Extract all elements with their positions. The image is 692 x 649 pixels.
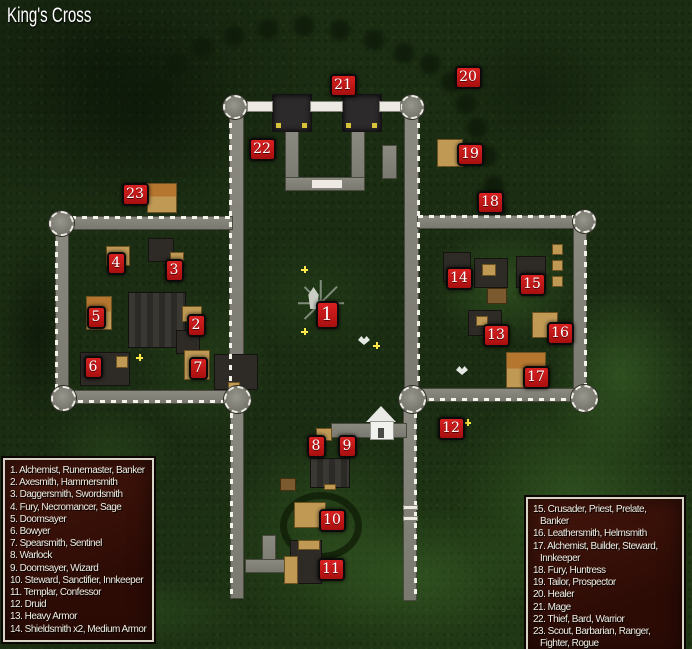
forest-trail <box>330 20 350 40</box>
forest-trail <box>456 94 476 114</box>
legend-item-18: 18. Fury, Huntress <box>533 565 676 577</box>
lantern-dot <box>346 123 351 128</box>
map-marker-14[interactable]: 14 <box>446 267 473 290</box>
castle-bridge <box>247 101 273 112</box>
wall-crenellation <box>55 219 58 401</box>
lantern-dot <box>276 123 281 128</box>
legend-item-13: 13. Heavy Armor <box>10 611 146 623</box>
forest-trail <box>224 26 244 46</box>
loot-cross <box>464 419 471 426</box>
map-marker-4[interactable]: 4 <box>107 252 126 275</box>
map-marker-3[interactable]: 3 <box>165 259 184 282</box>
legend-item-9: 9. Doomsayer, Wizard <box>10 563 146 575</box>
map-marker-22[interactable]: 22 <box>249 138 276 161</box>
tower-west-bottomleft <box>51 386 76 411</box>
map-marker-6[interactable]: 6 <box>84 356 103 379</box>
castle-bridge <box>310 101 343 112</box>
legend-item-1: 1. Alchemist, Runemaster, Banker <box>10 465 146 477</box>
crate-cluster <box>280 478 296 491</box>
legend-item-12: 12. Druid <box>10 599 146 611</box>
kings-cross-map: King's Cross 1. Alchemist, Runemaster, B… <box>0 0 692 649</box>
forest-trail <box>467 118 487 138</box>
building <box>116 356 128 368</box>
east-gate <box>403 505 418 510</box>
legend-item-11: 11. Templar, Confessor <box>10 587 146 599</box>
wall-crenellation <box>56 400 232 403</box>
legend-item-17: 17. Alchemist, Builder, Steward, Innkeep… <box>533 541 676 565</box>
forest-trail <box>166 54 186 74</box>
forest-trail <box>420 54 440 74</box>
crate-cluster <box>487 288 507 304</box>
loot-cross <box>301 328 308 335</box>
legend-item-14: 14. Shieldsmith x2, Medium Armor <box>10 624 146 636</box>
legend-left-panel: 1. Alchemist, Runemaster, Banker2. Axesm… <box>3 458 154 642</box>
building-door <box>324 484 336 490</box>
castle-bridge <box>379 101 401 112</box>
map-marker-8[interactable]: 8 <box>307 435 326 458</box>
legend-item-15: 15. Crusader, Priest, Prelate, Banker <box>533 504 676 528</box>
market-stall <box>552 276 563 287</box>
legend-right-panel: 15. Crusader, Priest, Prelate, Banker16.… <box>526 497 684 649</box>
forest-trail <box>364 30 384 50</box>
forest-trail <box>394 43 414 63</box>
map-marker-12[interactable]: 12 <box>438 417 465 440</box>
tower-east-topright <box>573 210 596 233</box>
building <box>482 264 496 276</box>
market-stall <box>552 244 563 255</box>
path <box>284 556 298 584</box>
building <box>147 183 177 213</box>
map-marker-7[interactable]: 7 <box>189 357 208 380</box>
wall-crenellation <box>418 215 578 218</box>
legend-item-19: 19. Tailor, Prospector <box>533 577 676 589</box>
path <box>298 540 320 550</box>
page-title: King's Cross <box>7 4 91 28</box>
legend-item-10: 10. Steward, Sanctifier, Innkeeper <box>10 575 146 587</box>
map-marker-9[interactable]: 9 <box>338 435 357 458</box>
wall-crenellation <box>414 402 417 600</box>
legend-item-2: 2. Axesmith, Hammersmith <box>10 477 146 489</box>
legend-item-7: 7. Spearsmith, Sentinel <box>10 538 146 550</box>
map-marker-13[interactable]: 13 <box>483 324 510 347</box>
legend-item-8: 8. Warlock <box>10 550 146 562</box>
east-gate <box>403 516 418 521</box>
wall-crenellation <box>229 112 232 402</box>
forest-trail <box>258 19 278 39</box>
forest-trail <box>294 16 314 36</box>
map-marker-5[interactable]: 5 <box>87 306 106 329</box>
map-marker-18[interactable]: 18 <box>477 191 504 214</box>
legend-right-list: 15. Crusader, Priest, Prelate, Banker16.… <box>533 504 676 649</box>
legend-item-22: 22. Thief, Bard, Warrior <box>533 614 676 626</box>
map-marker-1[interactable]: 1 <box>316 301 339 329</box>
map-marker-15[interactable]: 15 <box>519 273 546 296</box>
map-marker-21[interactable]: 21 <box>330 74 357 97</box>
lantern-dot <box>372 123 377 128</box>
white-house-icon <box>366 404 396 442</box>
legend-item-20: 20. Healer <box>533 589 676 601</box>
loot-cross <box>301 266 308 273</box>
legend-item-21: 21. Mage <box>533 602 676 614</box>
map-marker-23[interactable]: 23 <box>122 183 149 206</box>
legend-left-list: 1. Alchemist, Runemaster, Banker2. Axesm… <box>10 465 146 636</box>
wall-crenellation <box>417 112 420 402</box>
map-marker-10[interactable]: 10 <box>319 509 346 532</box>
legend-item-16: 16. Leathersmith, Helmsmith <box>533 528 676 540</box>
forest-trail <box>150 78 170 98</box>
map-marker-19[interactable]: 19 <box>457 143 484 166</box>
wall-crenellation <box>418 398 576 401</box>
small-structure <box>383 146 396 178</box>
lantern-dot <box>302 123 307 128</box>
map-marker-16[interactable]: 16 <box>547 322 574 345</box>
market-stall <box>552 260 563 271</box>
tower-west-topleft <box>49 211 74 236</box>
map-marker-11[interactable]: 11 <box>318 558 345 581</box>
tower-center-southwest <box>224 386 251 413</box>
courtyard-bridge <box>311 179 343 189</box>
legend-item-6: 6. Bowyer <box>10 526 146 538</box>
tower-north-left <box>223 95 247 119</box>
white-bird <box>456 366 468 375</box>
tower-east-bottomright <box>571 385 598 412</box>
map-marker-17[interactable]: 17 <box>523 366 550 389</box>
tower-center-southeast <box>399 386 426 413</box>
loot-cross <box>136 354 143 361</box>
tower-north-right <box>400 95 424 119</box>
wall-crenellation <box>584 218 587 400</box>
map-marker-2[interactable]: 2 <box>187 314 206 337</box>
wall-crenellation <box>230 402 233 598</box>
forest-trail <box>192 37 212 57</box>
legend-item-4: 4. Fury, Necromancer, Sage <box>10 502 146 514</box>
wall-crenellation <box>60 216 232 219</box>
legend-item-5: 5. Doomsayer <box>10 514 146 526</box>
loot-cross <box>373 342 380 349</box>
legend-item-23: 23. Scout, Barbarian, Ranger, Fighter, R… <box>533 626 676 649</box>
legend-item-3: 3. Daggersmith, Swordsmith <box>10 489 146 501</box>
map-marker-20[interactable]: 20 <box>455 66 482 89</box>
